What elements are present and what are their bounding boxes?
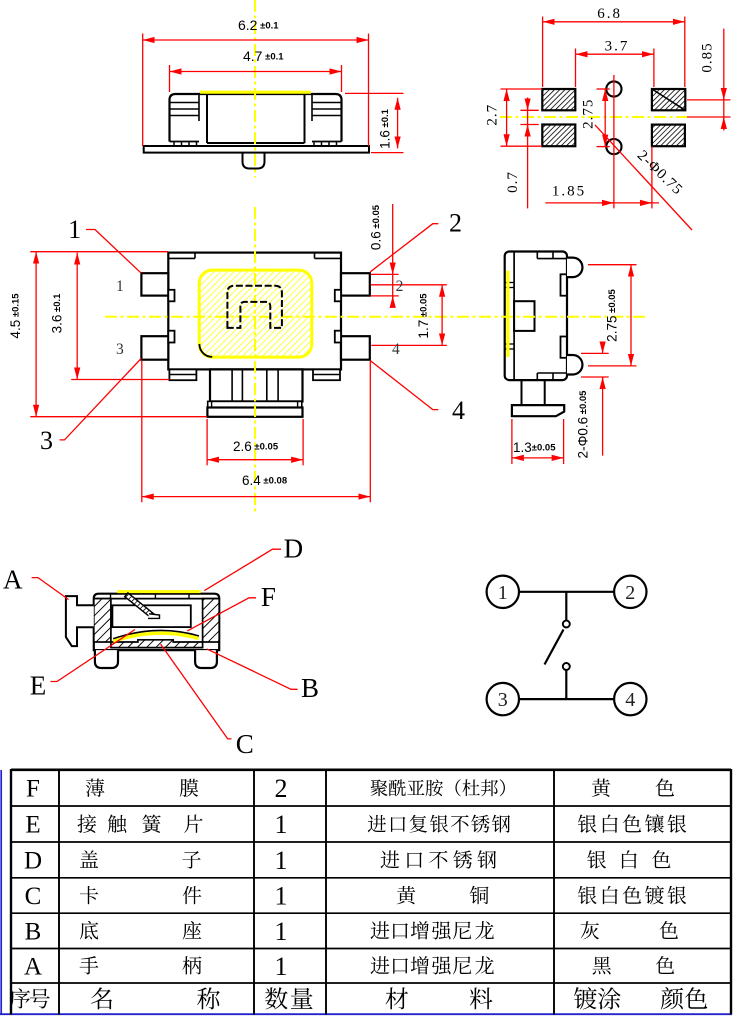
svg-text:3: 3 [40, 426, 53, 455]
svg-text:1: 1 [68, 215, 81, 244]
svg-text:4.5 ±0.15: 4.5 ±0.15 [8, 293, 23, 339]
svg-text:2: 2 [449, 209, 462, 238]
svg-text:1: 1 [116, 278, 124, 295]
svg-text:E: E [30, 671, 47, 701]
svg-text:B: B [25, 918, 42, 945]
svg-text:1: 1 [275, 882, 288, 911]
svg-text:2.75: 2.75 [581, 99, 597, 129]
svg-text:1.7 ±0.05: 1.7 ±0.05 [416, 293, 431, 339]
svg-text:1: 1 [275, 917, 288, 946]
svg-text:1: 1 [498, 582, 508, 604]
svg-text:6.8: 6.8 [597, 6, 622, 22]
svg-text:2.6 ±0.05: 2.6 ±0.05 [233, 439, 279, 454]
svg-text:2: 2 [275, 774, 288, 803]
svg-text:0.7: 0.7 [505, 171, 521, 193]
svg-text:A: A [24, 953, 42, 980]
svg-text:A: A [3, 565, 23, 595]
svg-text:F: F [261, 582, 276, 612]
svg-text:2: 2 [396, 278, 404, 295]
svg-text:1.6 ±0.1: 1.6 ±0.1 [378, 108, 393, 149]
svg-text:C: C [25, 883, 42, 910]
svg-text:2.75 ±0.05: 2.75 ±0.05 [605, 288, 620, 341]
svg-text:2-Φ0.6 ±0.05: 2-Φ0.6 ±0.05 [576, 390, 591, 459]
svg-text:3: 3 [498, 689, 508, 711]
svg-text:E: E [25, 812, 40, 839]
svg-text:D: D [24, 848, 42, 875]
svg-text:1: 1 [275, 846, 288, 875]
svg-text:3.6 ±0.1: 3.6 ±0.1 [50, 293, 65, 334]
svg-text:1.85: 1.85 [552, 184, 586, 200]
svg-text:1.3±0.05: 1.3±0.05 [513, 440, 556, 455]
svg-text:4: 4 [452, 396, 465, 425]
svg-text:0.6 ±0.05: 0.6 ±0.05 [368, 204, 383, 250]
svg-text:2.7: 2.7 [484, 104, 500, 126]
svg-text:2: 2 [625, 582, 635, 604]
svg-text:1: 1 [275, 952, 288, 981]
svg-text:3.7: 3.7 [605, 39, 630, 55]
svg-text:3: 3 [116, 341, 124, 358]
svg-text:D: D [284, 534, 304, 564]
svg-text:F: F [26, 776, 40, 803]
svg-text:4: 4 [392, 341, 400, 358]
svg-text:1: 1 [275, 810, 288, 839]
svg-text:6.4 ±0.08: 6.4 ±0.08 [242, 473, 287, 488]
svg-text:C: C [236, 729, 254, 759]
svg-text:B: B [301, 673, 319, 703]
svg-text:0.85: 0.85 [700, 42, 716, 72]
svg-text:4: 4 [625, 689, 635, 711]
